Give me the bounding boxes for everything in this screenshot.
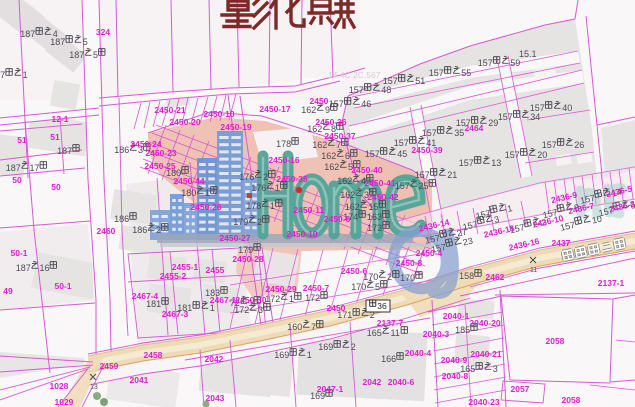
- svg-text:2450-21: 2450-21: [154, 105, 185, 115]
- svg-text:157: 157: [459, 158, 474, 168]
- svg-text:2450-35: 2450-35: [276, 174, 307, 184]
- svg-text:158: 158: [459, 271, 474, 281]
- svg-text:49: 49: [3, 286, 13, 296]
- svg-text:157: 157: [394, 138, 409, 148]
- svg-text:2: 2: [387, 272, 392, 282]
- svg-text:2450-10: 2450-10: [203, 109, 234, 119]
- svg-text:186: 186: [114, 145, 129, 155]
- svg-text:179: 179: [233, 217, 248, 227]
- svg-text:15: 15: [369, 202, 379, 212]
- svg-text:186: 186: [132, 225, 147, 235]
- svg-text:2: 2: [263, 172, 268, 182]
- svg-text:55: 55: [461, 68, 471, 78]
- svg-text:169: 169: [274, 350, 289, 360]
- svg-text:2450-4: 2450-4: [416, 248, 443, 258]
- svg-text:1: 1: [275, 183, 280, 193]
- svg-text:50: 50: [12, 175, 22, 185]
- svg-text:1: 1: [289, 294, 294, 304]
- svg-text:176: 176: [251, 183, 266, 193]
- svg-text:2450-40: 2450-40: [351, 165, 382, 175]
- svg-text:2450-8: 2450-8: [396, 258, 423, 268]
- svg-text:2450-44: 2450-44: [173, 176, 204, 186]
- svg-text:2450-11: 2450-11: [293, 205, 324, 215]
- svg-text:1028: 1028: [50, 381, 69, 391]
- svg-text:16: 16: [40, 263, 50, 273]
- svg-text:2450-42: 2450-42: [367, 192, 398, 202]
- svg-text:2450-10: 2450-10: [286, 229, 317, 239]
- svg-text:2455: 2455: [206, 265, 225, 275]
- svg-text:2040-4: 2040-4: [405, 348, 432, 358]
- svg-text:2047-1: 2047-1: [317, 384, 344, 394]
- svg-text:2040-21: 2040-21: [470, 349, 501, 359]
- svg-text:2040-9: 2040-9: [441, 355, 468, 365]
- svg-text:187: 187: [6, 163, 21, 173]
- svg-text:157: 157: [365, 149, 380, 159]
- svg-text:157: 157: [505, 150, 520, 160]
- svg-text:163: 163: [367, 212, 382, 222]
- svg-text:157: 157: [415, 170, 430, 180]
- svg-text:157: 157: [429, 68, 444, 78]
- svg-text:6: 6: [345, 151, 350, 161]
- svg-text:157: 157: [383, 76, 398, 86]
- svg-text:178: 178: [276, 139, 291, 149]
- svg-text:2: 2: [351, 342, 356, 352]
- svg-text:178: 178: [246, 201, 261, 211]
- svg-text:7: 7: [0, 70, 5, 80]
- svg-text:187: 187: [57, 146, 72, 156]
- svg-text:2450-29: 2450-29: [265, 284, 296, 294]
- svg-text:2458: 2458: [144, 350, 163, 360]
- svg-text:11: 11: [391, 328, 400, 338]
- svg-text:180: 180: [181, 188, 196, 198]
- svg-text:40: 40: [562, 103, 572, 113]
- svg-text:187: 187: [69, 50, 84, 60]
- svg-text:162: 162: [321, 151, 336, 161]
- svg-text:59: 59: [510, 58, 520, 68]
- svg-text:1: 1: [205, 188, 210, 198]
- svg-text:157: 157: [349, 85, 364, 95]
- svg-text:186: 186: [114, 214, 129, 224]
- svg-text:25: 25: [419, 181, 429, 191]
- svg-text:2040-3: 2040-3: [423, 329, 450, 339]
- svg-text:165: 165: [367, 328, 382, 338]
- svg-text:2057: 2057: [511, 384, 530, 394]
- svg-text:51: 51: [17, 135, 27, 145]
- svg-text:3: 3: [493, 364, 498, 374]
- svg-text:166: 166: [381, 354, 396, 364]
- svg-text:26: 26: [574, 140, 584, 150]
- svg-text:2450-36: 2450-36: [315, 117, 346, 127]
- svg-text:2450-30: 2450-30: [235, 295, 266, 305]
- svg-text:2450-20: 2450-20: [169, 117, 200, 127]
- svg-text:2437: 2437: [552, 238, 571, 248]
- svg-text:51: 51: [50, 132, 60, 142]
- svg-text:2137-1: 2137-1: [598, 278, 625, 288]
- svg-text:2450-25: 2450-25: [144, 161, 175, 171]
- svg-text:2462: 2462: [486, 272, 505, 282]
- svg-text:187: 187: [20, 29, 35, 39]
- svg-text:1: 1: [270, 201, 275, 211]
- svg-text:2450-17: 2450-17: [259, 104, 290, 114]
- svg-text:160: 160: [287, 322, 302, 332]
- svg-text:2041: 2041: [130, 375, 149, 385]
- svg-text:157: 157: [329, 99, 344, 109]
- svg-text:2455-2: 2455-2: [160, 271, 187, 281]
- svg-text:2040-20: 2040-20: [469, 318, 500, 328]
- svg-text:21: 21: [447, 170, 457, 180]
- svg-text:7: 7: [336, 140, 341, 150]
- svg-text:2450: 2450: [310, 96, 329, 106]
- svg-text:15.1: 15.1: [519, 49, 537, 59]
- svg-text:2450-23: 2450-23: [145, 148, 176, 158]
- svg-text:2137-7: 2137-7: [377, 318, 404, 328]
- svg-text:2464: 2464: [465, 123, 484, 133]
- svg-text:35: 35: [454, 128, 464, 138]
- svg-text:45: 45: [397, 149, 407, 159]
- svg-text:50: 50: [51, 182, 61, 192]
- svg-text:172: 172: [234, 305, 249, 315]
- svg-text:162: 162: [312, 140, 327, 150]
- svg-text:2042: 2042: [363, 377, 382, 387]
- svg-text:1029: 1029: [55, 397, 74, 407]
- svg-text:162: 162: [337, 176, 352, 186]
- svg-text:2040-8: 2040-8: [442, 371, 469, 381]
- svg-text:1: 1: [23, 70, 28, 80]
- svg-text:2450-41: 2450-41: [364, 178, 395, 188]
- svg-text:157: 157: [498, 112, 513, 122]
- svg-text:2460: 2460: [97, 226, 116, 236]
- svg-text:172: 172: [305, 293, 320, 303]
- svg-text:2450-26: 2450-26: [190, 202, 221, 212]
- svg-text:157: 157: [478, 58, 493, 68]
- svg-text:5: 5: [375, 282, 380, 292]
- svg-text:162: 162: [324, 162, 339, 172]
- svg-text:46: 46: [361, 99, 371, 109]
- svg-text:172: 172: [265, 294, 280, 304]
- svg-text:7: 7: [311, 322, 316, 332]
- svg-text:187: 187: [50, 37, 65, 47]
- svg-text:12-1: 12-1: [52, 114, 69, 124]
- svg-text:157: 157: [422, 128, 437, 138]
- svg-text:13: 13: [90, 384, 98, 391]
- svg-text:185: 185: [455, 325, 470, 335]
- svg-text:36: 36: [377, 301, 387, 311]
- svg-text:2040-1: 2040-1: [443, 311, 470, 321]
- svg-text:51: 51: [415, 76, 425, 86]
- svg-text:5: 5: [93, 50, 98, 60]
- svg-text:2450-19: 2450-19: [220, 122, 251, 132]
- svg-text:2450-16: 2450-16: [268, 155, 299, 165]
- svg-text:3: 3: [258, 305, 263, 315]
- svg-text:2450: 2450: [327, 303, 346, 313]
- svg-text:2450-37: 2450-37: [324, 131, 355, 141]
- svg-text:14.4C 2C.567: 14.4C 2C.567: [328, 70, 381, 80]
- svg-text:324: 324: [96, 27, 110, 37]
- svg-text:13: 13: [491, 158, 501, 168]
- svg-text:2459: 2459: [100, 361, 119, 371]
- svg-text:2: 2: [156, 225, 161, 235]
- svg-text:169: 169: [318, 342, 333, 352]
- svg-text:162: 162: [301, 105, 316, 115]
- svg-text:50-1: 50-1: [55, 281, 72, 291]
- svg-text:176: 176: [239, 172, 254, 182]
- svg-text:2467-1: 2467-1: [210, 295, 237, 305]
- svg-text:5: 5: [83, 37, 88, 47]
- svg-text:2467-3: 2467-3: [162, 309, 189, 319]
- svg-text:48: 48: [381, 85, 391, 95]
- svg-text:2450-6: 2450-6: [324, 214, 351, 224]
- svg-text:2450-39: 2450-39: [411, 145, 442, 155]
- svg-text:2040-23: 2040-23: [468, 397, 499, 407]
- svg-text:11: 11: [530, 267, 537, 274]
- svg-text:20: 20: [537, 150, 547, 160]
- svg-text:29: 29: [488, 118, 498, 128]
- svg-text:2467-4: 2467-4: [132, 291, 159, 301]
- svg-text:170: 170: [400, 273, 415, 283]
- svg-text:1: 1: [307, 350, 312, 360]
- svg-text:34: 34: [530, 112, 540, 122]
- svg-text:162: 162: [340, 190, 355, 200]
- svg-text:157: 157: [542, 140, 557, 150]
- svg-text:2450-6: 2450-6: [341, 266, 368, 276]
- svg-text:2042: 2042: [205, 354, 224, 364]
- svg-text:50-1: 50-1: [11, 248, 28, 258]
- svg-text:2040-6: 2040-6: [388, 377, 415, 387]
- svg-text:157: 157: [395, 181, 410, 191]
- svg-text:162: 162: [345, 202, 360, 212]
- svg-text:2450-27: 2450-27: [219, 233, 250, 243]
- svg-text:2058: 2058: [562, 395, 581, 405]
- svg-text:17: 17: [30, 163, 40, 173]
- svg-text:170: 170: [351, 282, 366, 292]
- svg-text:2450-28: 2450-28: [232, 254, 263, 264]
- svg-text:2450-7: 2450-7: [303, 283, 330, 293]
- svg-text:2: 2: [257, 217, 262, 227]
- svg-text:173: 173: [367, 223, 382, 233]
- svg-text:187: 187: [16, 263, 31, 273]
- svg-text:2058: 2058: [546, 336, 565, 346]
